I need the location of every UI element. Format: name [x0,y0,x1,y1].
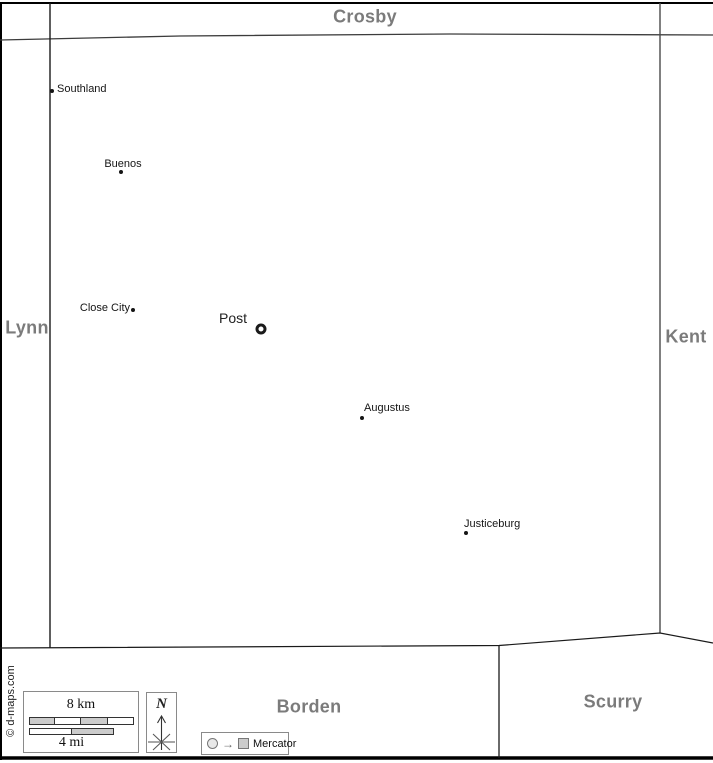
town-marker-southland [50,89,54,93]
county-label-scurry: Scurry [584,692,643,713]
copyright-text: © d-maps.com [5,665,17,737]
north-arrow-box: N [146,692,177,753]
projected-square-icon [238,738,249,749]
county-label-kent: Kent [665,327,706,348]
county-seat-marker-post [256,324,267,335]
scale-box: 8 km 4 mi [23,691,139,753]
town-label-close-city: Close City [80,302,130,314]
town-label-buenos: Buenos [104,158,141,170]
town-label-southland: Southland [57,83,107,95]
projection-box: → Mercator [201,732,289,755]
scale-mi-label: 4 mi [29,735,114,751]
town-label-augustus: Augustus [364,402,410,414]
scale-segment [108,717,134,725]
scale-bar-mi [29,728,114,735]
town-label-post: Post [219,310,247,326]
map-boundary-lines [0,0,713,763]
scale-segment [72,728,114,735]
county-label-lynn: Lynn [5,318,49,339]
town-label-justiceburg: Justiceburg [464,518,520,530]
scale-km-label: 8 km [24,697,138,713]
town-marker-close-city [131,308,135,312]
globe-circle-icon [207,738,218,749]
scale-segment [29,717,55,725]
town-marker-justiceburg [464,531,468,535]
county-map: Crosby Lynn Kent Borden Scurry Southland… [0,0,713,763]
county-label-borden: Borden [277,697,342,718]
town-marker-buenos [119,170,123,174]
north-arrow-icon [147,712,176,752]
north-label: N [147,696,176,713]
projection-label: Mercator [253,738,296,750]
town-marker-augustus [360,416,364,420]
scale-segment [81,717,108,725]
scale-bar-km [29,717,134,725]
scale-segment [55,717,81,725]
arrow-right-icon: → [222,738,234,750]
county-label-crosby: Crosby [333,7,397,28]
scale-segment [29,728,72,735]
boundary-north-crosby [0,34,713,40]
boundary-south [0,633,713,648]
